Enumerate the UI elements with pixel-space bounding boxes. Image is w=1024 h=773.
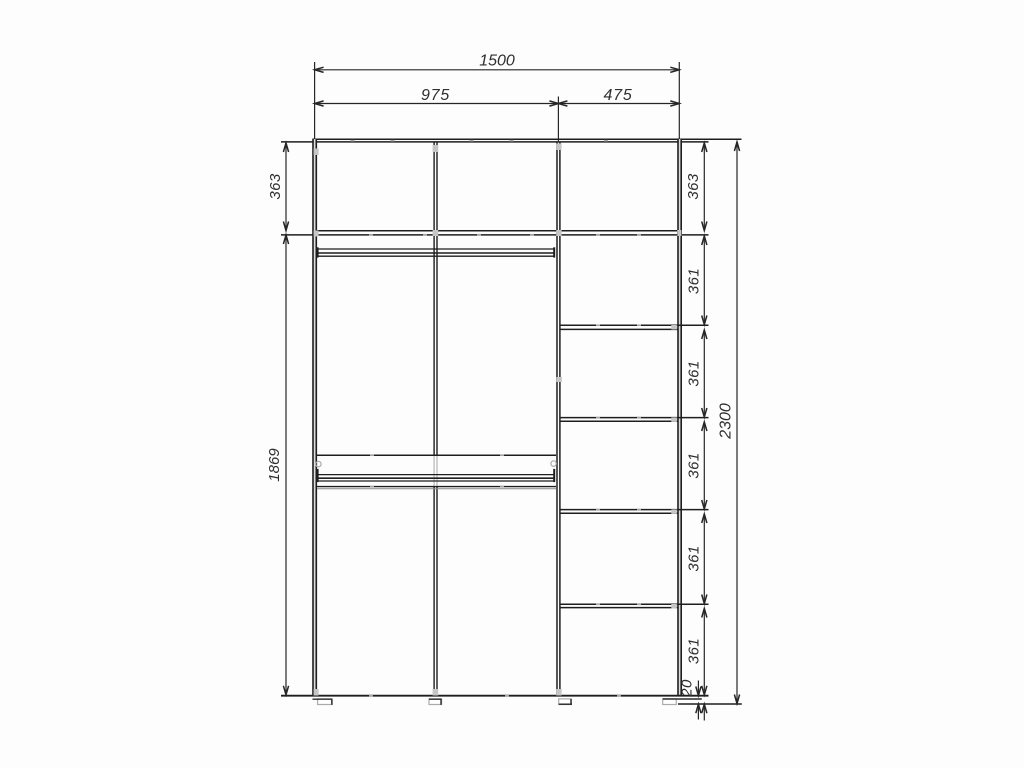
svg-text:361: 361	[686, 452, 703, 478]
svg-text:2300: 2300	[718, 403, 735, 440]
svg-text:363: 363	[267, 173, 284, 199]
svg-text:361: 361	[686, 360, 703, 386]
svg-text:363: 363	[685, 173, 702, 199]
svg-text:20: 20	[679, 679, 696, 698]
svg-text:361: 361	[686, 268, 703, 294]
svg-text:975: 975	[421, 87, 450, 104]
svg-text:361: 361	[686, 545, 703, 571]
svg-text:361: 361	[686, 638, 703, 664]
svg-text:1500: 1500	[479, 53, 515, 70]
svg-text:1869: 1869	[266, 448, 283, 482]
svg-text:475: 475	[603, 87, 632, 104]
